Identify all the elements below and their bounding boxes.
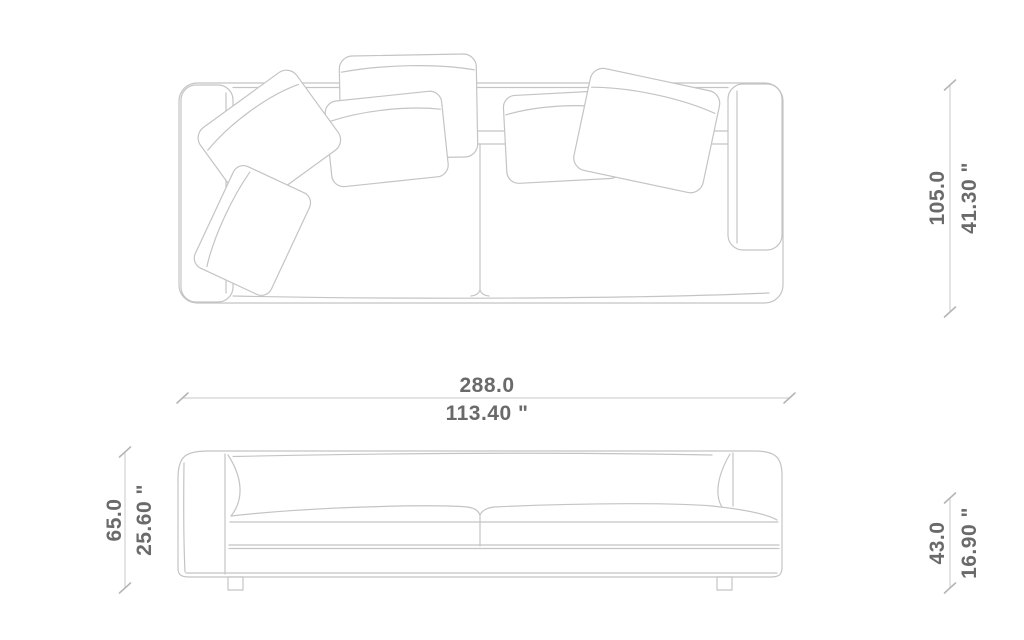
top-view-pillow-center-left — [324, 90, 449, 188]
sofa-top-view — [179, 54, 783, 303]
dimension-height-metric-label: 65.0 — [103, 499, 126, 542]
front-view-right-leg — [717, 577, 732, 590]
dimension-depth-metric-label: 105.0 — [926, 170, 949, 225]
dimension-width-metric-label: 288.0 — [459, 374, 514, 397]
diagram-canvas: 288.0 113.40 " 105.0 41.30 " 65.0 25.60 … — [0, 0, 1024, 640]
front-view-left-leg — [228, 577, 243, 590]
dimension-height: 65.0 25.60 " — [103, 447, 156, 593]
dimension-width-imperial-label: 113.40 " — [446, 402, 529, 425]
dimension-seat-height-imperial-label: 16.90 " — [958, 507, 981, 579]
sofa-front-view — [178, 451, 782, 590]
dimension-seat-height: 43.0 16.90 " — [926, 493, 981, 593]
dimension-width: 288.0 113.40 " — [177, 374, 795, 425]
dimension-seat-height-metric-label: 43.0 — [926, 522, 949, 565]
dimension-height-imperial-label: 25.60 " — [133, 484, 156, 556]
dimension-depth: 105.0 41.30 " — [926, 80, 981, 317]
dimension-depth-imperial-label: 41.30 " — [958, 162, 981, 234]
sofa-dimension-diagram: 288.0 113.40 " 105.0 41.30 " 65.0 25.60 … — [0, 0, 1024, 640]
top-view-right-armrest — [728, 84, 782, 250]
